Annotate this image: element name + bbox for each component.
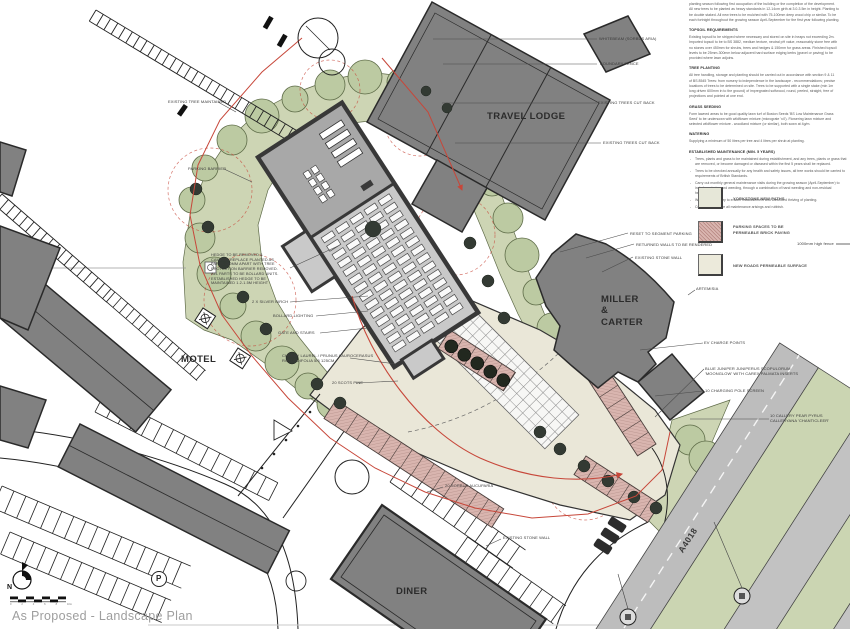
plan-title: As Proposed - Landscape Plan (12, 609, 193, 623)
maintenance-bullet: Water as necessary to ensure establishme… (689, 198, 849, 203)
spec-heading-grass-seeding: GRASS SEEDING (689, 105, 849, 111)
maintenance-bullet: Trees, plants and grass to be maintained… (689, 157, 849, 168)
scale-tick: 4 (33, 603, 34, 606)
spec-line: Imported topsoil to be to BS 3882, mediu… (689, 40, 849, 45)
scale-bar-ticks: 0246810m (10, 603, 72, 606)
maintenance-bullet-list: Trees, plants and grass to be maintained… (689, 157, 849, 210)
scale-tick: 10m (67, 603, 72, 606)
scale-tick: 0 (10, 603, 11, 606)
scale-tick: 8 (56, 603, 57, 606)
spec-line: be double staked. All new trees to be mu… (689, 13, 849, 18)
landscape-plan-sheet: planting season following first occupati… (0, 0, 850, 629)
spec-line: provided where lawn adjoins. (689, 56, 849, 61)
spec-line: Supplying a minimum of 50 litres per tre… (689, 139, 849, 144)
scale-tick: 6 (44, 603, 45, 606)
maintenance-bullet: Collect and remove all maintenance arisi… (689, 205, 849, 210)
spec-heading-maintenance: ESTABLISHED MAINTENANCE (MIN. 5 YEARS) (689, 150, 849, 156)
scale-tick: 2 (21, 603, 22, 606)
spec-line: each fortnight throughout the growing se… (689, 18, 849, 23)
maintenance-bullet: Trees to be checked annually for any hea… (689, 169, 849, 180)
spec-line: projections and pointed at one end. (689, 94, 849, 99)
spec-heading-watering: WATERING (689, 132, 849, 138)
spec-heading-topsoil-requirements: TOPSOIL REQUIREMENTS (689, 28, 849, 34)
maintenance-bullet: Carry out monthly general maintenance vi… (689, 181, 849, 197)
specification-notes: planting season following first occupati… (689, 2, 849, 211)
spec-line: All tree handling, storage and planting … (689, 73, 849, 78)
spec-heading-tree-planting: TREE PLANTING (689, 66, 849, 72)
scale-bar (10, 597, 66, 603)
spec-line: All new trees to be planted as heavy sta… (689, 7, 849, 12)
spec-line: selected wildflower mixture - woodland m… (689, 122, 849, 127)
